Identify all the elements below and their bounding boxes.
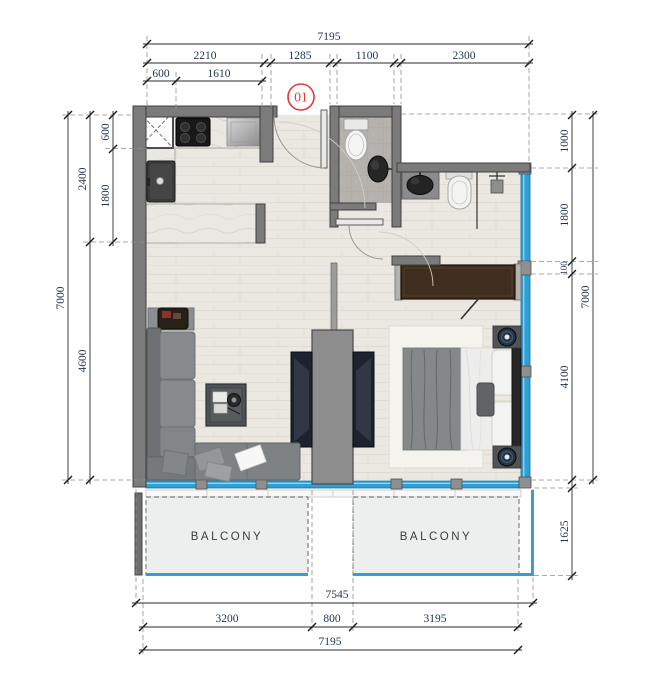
balcony-right-label: BALCONY xyxy=(400,531,472,543)
entry-door-leaf xyxy=(321,110,327,168)
dim-left-mid-2: 4600 xyxy=(77,349,89,372)
balcony-left-label: BALCONY xyxy=(191,531,263,543)
unit-number-text: 01 xyxy=(294,90,308,105)
balcony-zone: BALCONY BALCONY xyxy=(135,490,534,576)
wash-basin xyxy=(407,176,433,195)
bathroom-entry xyxy=(339,115,392,203)
dim-left-inner-1: 600 xyxy=(100,123,112,141)
dim-top-seg-1: 2210 xyxy=(194,50,217,62)
dim-top-seg-4: 2300 xyxy=(453,50,476,62)
balcony-track xyxy=(146,490,521,497)
dim-top-sub-1: 600 xyxy=(152,68,170,80)
unit-number-badge: 01 xyxy=(288,84,314,110)
dim-top-seg-2: 1285 xyxy=(289,50,312,62)
kitchen-sink xyxy=(227,118,260,146)
top-wall-left xyxy=(133,106,277,117)
coffee-table xyxy=(206,384,246,426)
dim-bottom-outer: 7545 xyxy=(326,589,349,601)
stove xyxy=(176,118,210,146)
dim-right-balcony: 1625 xyxy=(559,520,571,543)
headboard xyxy=(512,348,521,450)
dim-top-total: 7195 xyxy=(318,31,341,43)
left-wall xyxy=(133,106,146,487)
dim-top-seg-3: 1100 xyxy=(356,50,379,62)
bath1-door-leaf xyxy=(336,219,383,225)
dim-bottom-total: 7195 xyxy=(319,636,342,648)
nightstand-bottom xyxy=(493,446,521,468)
dim-top-sub-2: 1610 xyxy=(208,68,231,80)
toilet xyxy=(446,172,472,209)
dim-bottom-seg-3: 3195 xyxy=(424,613,447,625)
dim-right-seg-2: 1800 xyxy=(559,203,571,226)
dim-bottom-seg-2: 800 xyxy=(323,613,341,625)
blanket xyxy=(403,348,467,450)
bath2-top-wall xyxy=(397,163,530,172)
fridge xyxy=(147,161,175,202)
kitchen-counter-peninsula xyxy=(146,204,256,243)
tv-bedroom xyxy=(353,352,374,447)
dim-right-seg-4: 4100 xyxy=(559,365,571,388)
bath1-left-wall xyxy=(330,106,339,210)
partition-stub-wall xyxy=(331,263,337,330)
top-wall-right xyxy=(330,106,401,117)
dim-left-total: 7000 xyxy=(55,286,67,309)
bath1-bottom-wall xyxy=(330,203,376,210)
peninsula-end-wall xyxy=(256,204,265,243)
bath2-bottom-stub xyxy=(392,256,440,265)
dim-right-seg-1: 1000 xyxy=(559,129,571,152)
floor-plan-unit-drawing: BALCONY BALCONY xyxy=(0,0,660,691)
nightstand-top xyxy=(493,326,521,348)
tv-living xyxy=(291,352,312,447)
dim-right-total: 7000 xyxy=(580,285,592,308)
kitchen-entry-stub-wall xyxy=(260,106,273,162)
dim-right-seg-3: 100 xyxy=(559,261,569,275)
right-window-wall xyxy=(521,163,530,487)
dim-left-inner-2: 1800 xyxy=(100,184,112,207)
vanity-counter xyxy=(402,171,439,199)
dim-left-mid-1: 2400 xyxy=(77,167,89,190)
partition-column xyxy=(312,330,353,484)
accent-pillow xyxy=(477,383,494,416)
floor-plan-page: BALCONY BALCONY xyxy=(0,0,660,691)
dim-bottom-seg-1: 3200 xyxy=(216,613,239,625)
toilet xyxy=(344,119,368,160)
